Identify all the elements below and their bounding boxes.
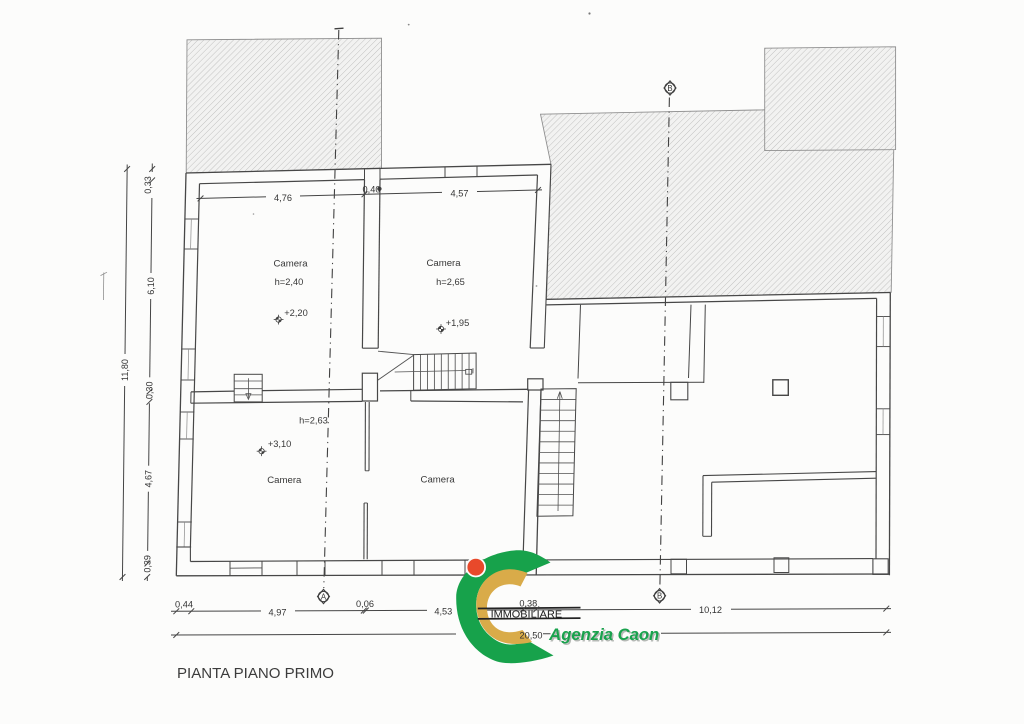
svg-text:4,67: 4,67: [144, 470, 154, 488]
svg-text:10,12: 10,12: [699, 605, 722, 615]
svg-text:4,53: 4,53: [434, 607, 452, 617]
svg-text:+1,95: +1,95: [446, 318, 470, 328]
svg-text:0,38: 0,38: [519, 599, 537, 609]
svg-text:A: A: [321, 592, 327, 601]
svg-text:Agenzia Caon: Agenzia Caon: [548, 626, 659, 644]
svg-text:0,40: 0,40: [363, 185, 381, 195]
svg-text:h=2,63: h=2,63: [299, 415, 328, 425]
svg-text:h=2,65: h=2,65: [436, 277, 465, 287]
svg-text:h=2,40: h=2,40: [275, 277, 304, 287]
svg-text:PIANTA PIANO PRIMO: PIANTA PIANO PRIMO: [177, 665, 334, 682]
svg-text:B: B: [657, 592, 662, 601]
svg-text:20,50: 20,50: [520, 631, 543, 641]
svg-text:0,06: 0,06: [356, 599, 374, 609]
svg-text:+3,10: +3,10: [268, 439, 292, 449]
svg-text:+2,20: +2,20: [284, 308, 308, 318]
svg-text:4,97: 4,97: [269, 607, 287, 617]
svg-text:Camera: Camera: [426, 258, 461, 269]
svg-text:4,76: 4,76: [274, 193, 292, 203]
svg-text:B: B: [667, 84, 672, 93]
svg-text:0,33: 0,33: [143, 176, 153, 194]
svg-text:6,10: 6,10: [146, 277, 156, 295]
svg-text:Camera: Camera: [421, 474, 456, 485]
svg-text:11,80: 11,80: [120, 359, 130, 381]
svg-text:IMMOBILIARE: IMMOBILIARE: [491, 609, 563, 620]
svg-text:0,44: 0,44: [175, 599, 193, 609]
svg-text:Camera: Camera: [273, 259, 308, 270]
svg-text:0,30: 0,30: [145, 382, 155, 400]
svg-text:4,57: 4,57: [451, 188, 469, 198]
svg-text:Camera: Camera: [267, 475, 302, 486]
